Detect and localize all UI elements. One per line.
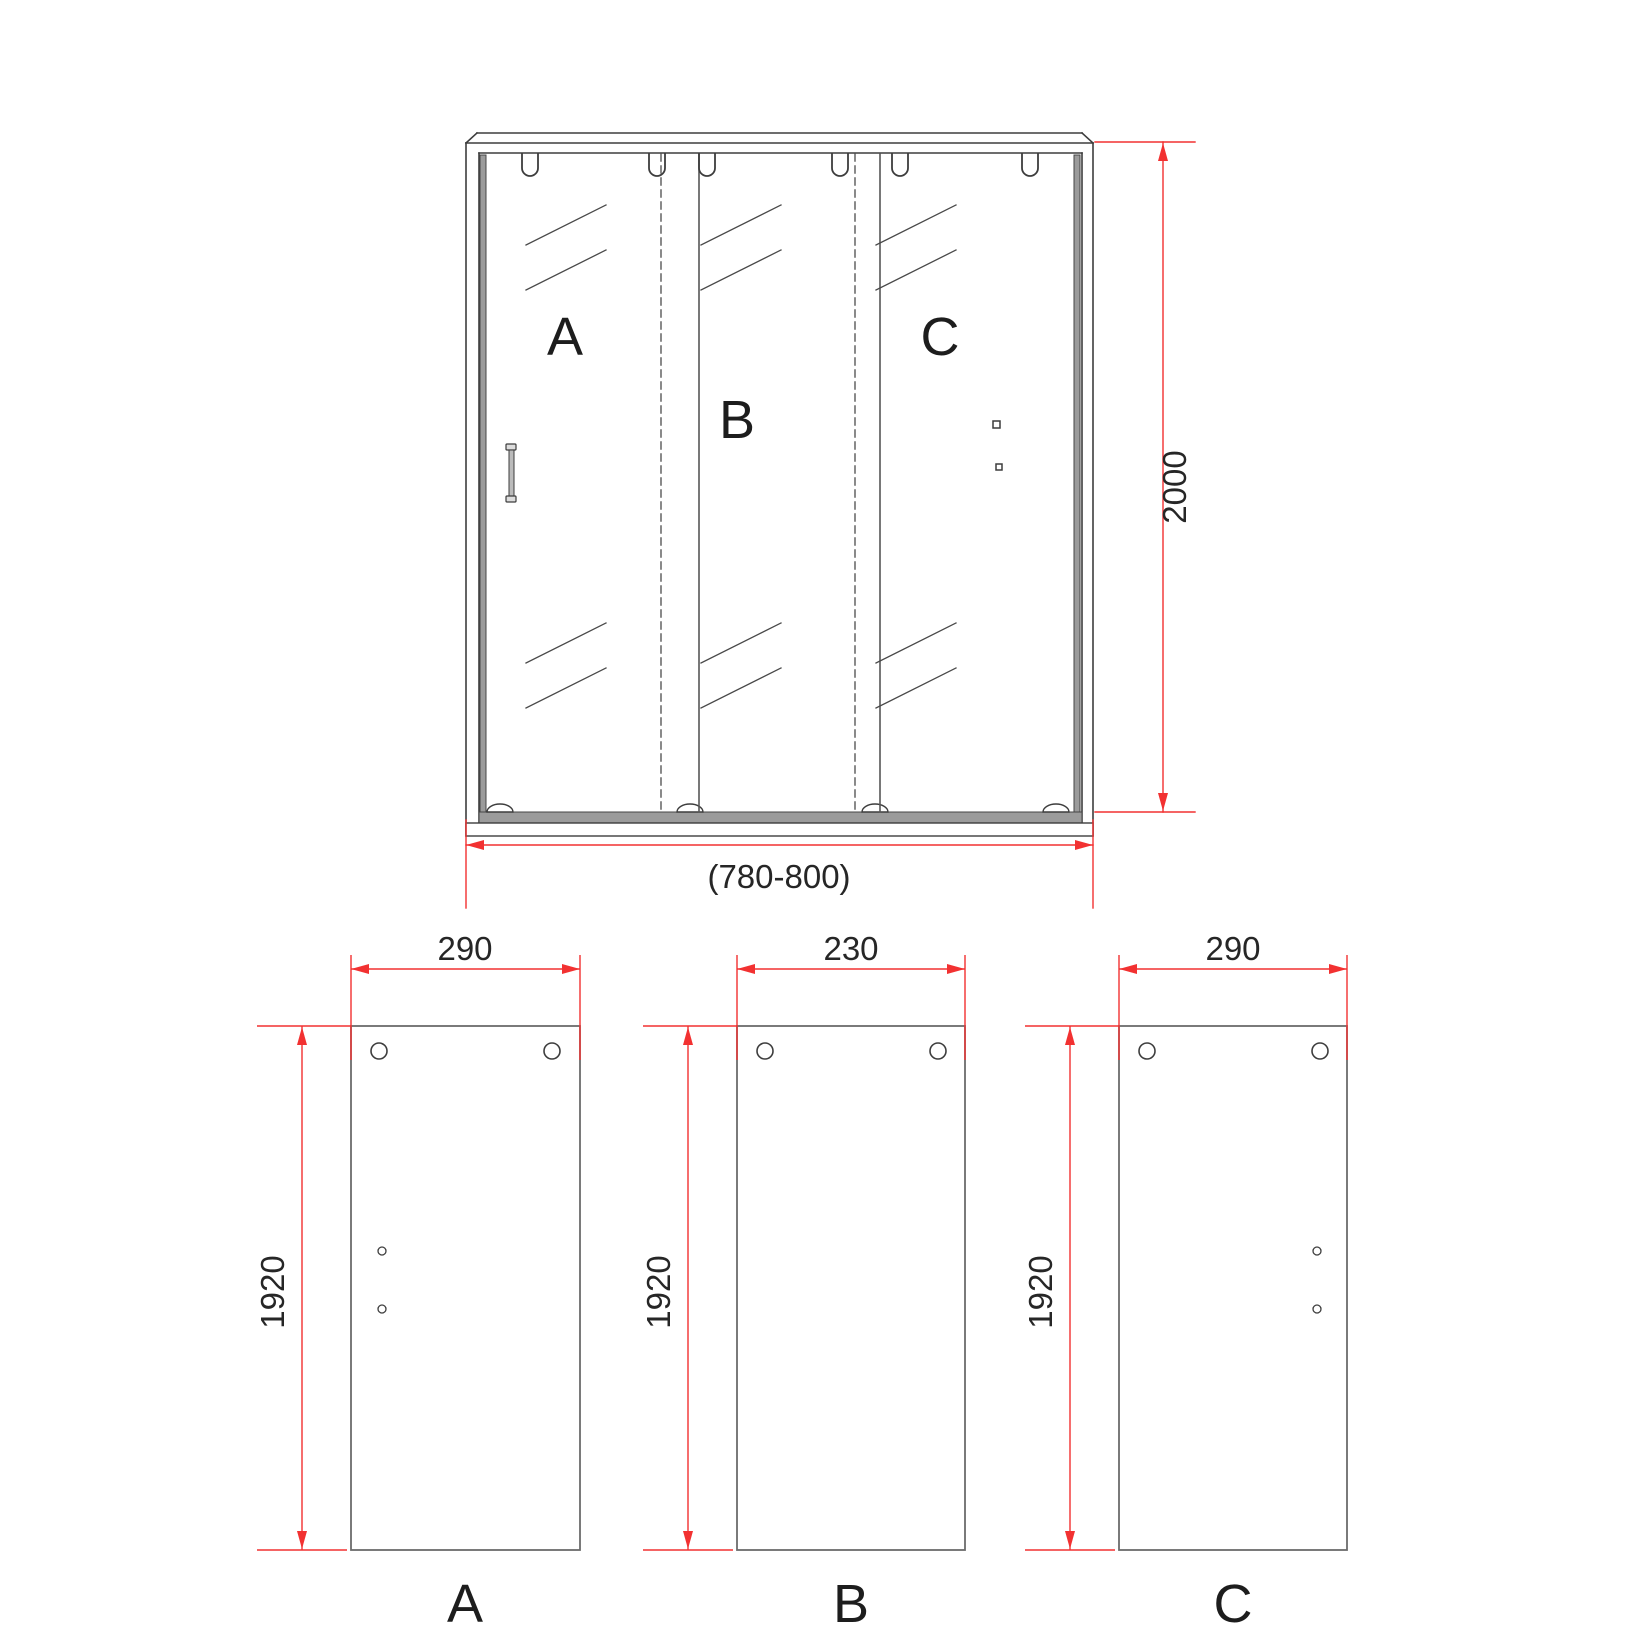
assembly-panel-a-label: A [547, 307, 583, 367]
bottom-sill [466, 823, 1093, 836]
panel-a-height-value: 1920 [254, 1255, 291, 1328]
panel-c-label: C [1214, 1574, 1253, 1634]
roller-icon [862, 804, 888, 812]
hook-icon [699, 154, 715, 176]
hook-icon [522, 154, 538, 176]
cut-panel-b-drawing: 230 1920 B [640, 930, 965, 1634]
panel-b-height-dimension: 1920 [640, 1026, 737, 1550]
arrow-left-icon [1119, 964, 1137, 974]
hook-icon [1022, 154, 1038, 176]
hook-icon [649, 154, 665, 176]
panel-c-fittings [993, 421, 1002, 470]
arrow-up-icon [297, 1027, 307, 1045]
glass-reflection-marks [526, 205, 956, 708]
arrow-down-icon [1065, 1531, 1075, 1549]
panel-b-glass [737, 1026, 965, 1550]
shower-door-technical-drawing: A B C 2000 (780-800) [0, 0, 1640, 1640]
cut-panel-c-drawing: 290 1920 C [1022, 930, 1347, 1634]
arrow-up-icon [683, 1027, 693, 1045]
arrow-left-icon [351, 964, 369, 974]
arrow-down-icon [683, 1531, 693, 1549]
hook-icon [892, 154, 908, 176]
hidden-panel-edges [661, 154, 855, 812]
arrow-right-icon [1075, 840, 1093, 850]
panel-c-height-value: 1920 [1022, 1255, 1059, 1328]
cut-panel-a-drawing: 290 1920 A [254, 930, 580, 1634]
frame-side-jambs [466, 143, 1093, 836]
panel-a-height-dimension: 1920 [254, 1026, 351, 1550]
assembly-width-value: (780-800) [707, 858, 850, 895]
panel-a-width-value: 290 [437, 930, 492, 967]
panel-c-glass [1119, 1026, 1347, 1550]
assembly-panel-b-label: B [719, 390, 755, 450]
frame-top-rail [466, 133, 1093, 153]
arrow-right-icon [947, 964, 965, 974]
panel-a-glass [351, 1026, 580, 1550]
left-wall-profile [480, 155, 486, 812]
hook-icon [832, 154, 848, 176]
panel-b-label: B [833, 1574, 869, 1634]
drawing-svg: A B C 2000 (780-800) [0, 0, 1640, 1640]
panel-c-height-dimension: 1920 [1022, 1026, 1119, 1550]
panel-c-width-value: 290 [1205, 930, 1260, 967]
panel-edges [699, 154, 880, 812]
arrow-right-icon [1329, 964, 1347, 974]
hanger-hooks [522, 154, 1038, 176]
roller-icon [487, 804, 513, 812]
arrow-left-icon [737, 964, 755, 974]
arrow-down-icon [1158, 793, 1168, 811]
panel-b-width-value: 230 [823, 930, 878, 967]
arrow-down-icon [297, 1531, 307, 1549]
bottom-track-rail [479, 812, 1082, 823]
roller-icon [1043, 804, 1069, 812]
right-wall-profile [1074, 155, 1080, 812]
arrow-right-icon [562, 964, 580, 974]
assembly-drawing: A B C 2000 (780-800) [466, 133, 1195, 908]
bottom-rollers [487, 804, 1069, 812]
assembly-height-dimension: 2000 [1095, 142, 1195, 812]
arrow-left-icon [466, 840, 484, 850]
assembly-panel-c-label: C [921, 307, 960, 367]
panel-b-height-value: 1920 [640, 1255, 677, 1328]
assembly-height-value: 2000 [1156, 450, 1193, 523]
door-handle [506, 444, 516, 502]
arrow-up-icon [1065, 1027, 1075, 1045]
arrow-up-icon [1158, 143, 1168, 161]
panel-a-label: A [447, 1574, 483, 1634]
